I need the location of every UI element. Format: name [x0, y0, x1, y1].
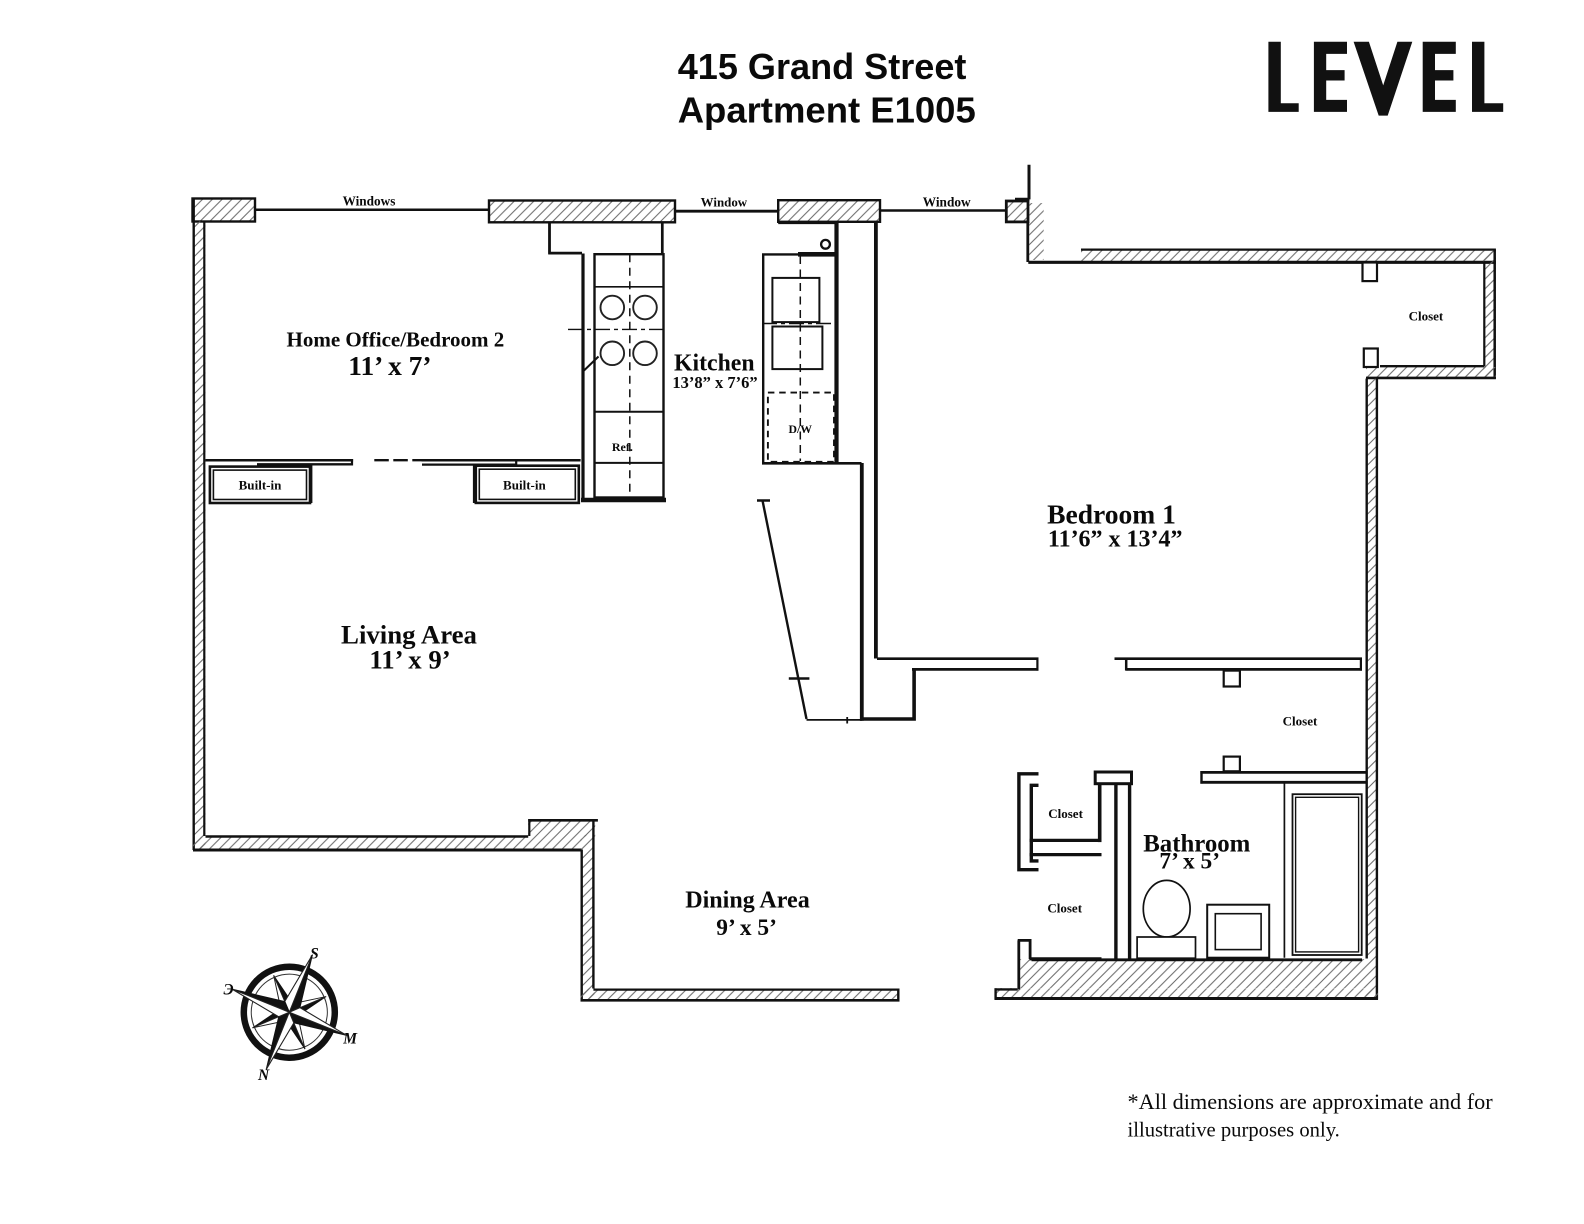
svg-text:Closet: Closet [1048, 806, 1083, 821]
svg-text:illustrative purposes only.: illustrative purposes only. [1128, 1120, 1340, 1142]
svg-text:Ref.: Ref. [612, 440, 633, 454]
svg-text:11’6” x 13’4”: 11’6” x 13’4” [1048, 527, 1183, 553]
svg-text:Built-in: Built-in [503, 477, 547, 492]
svg-text:13’8” x 7’6”: 13’8” x 7’6” [672, 373, 757, 392]
svg-text:N: N [257, 1067, 270, 1084]
svg-text:7’ x 5’: 7’ x 5’ [1159, 849, 1220, 875]
svg-text:11’ x 9’: 11’ x 9’ [369, 645, 450, 675]
svg-text:Bedroom 1: Bedroom 1 [1047, 499, 1176, 530]
svg-text:Closet: Closet [1283, 713, 1318, 728]
svg-text:M: M [342, 1030, 358, 1047]
svg-text:Window: Window [923, 195, 971, 210]
svg-text:415 Grand Street: 415 Grand Street [678, 46, 967, 87]
svg-text:Apartment E1005: Apartment E1005 [678, 90, 976, 131]
svg-text:Windows: Windows [343, 194, 396, 209]
svg-text:Dining Area: Dining Area [685, 888, 810, 914]
svg-text:Home Office/Bedroom 2: Home Office/Bedroom 2 [287, 327, 505, 351]
svg-text:Closet: Closet [1409, 309, 1444, 324]
svg-text:11’ x 7’: 11’ x 7’ [348, 351, 431, 381]
svg-text:Closet: Closet [1047, 900, 1082, 915]
svg-text:*All dimensions are approximat: *All dimensions are approximate and for [1128, 1089, 1494, 1114]
svg-text:D/W: D/W [789, 423, 813, 436]
svg-text:Built-in: Built-in [239, 478, 283, 493]
svg-text:Э: Э [224, 982, 234, 999]
svg-text:9’ x 5’: 9’ x 5’ [716, 915, 777, 941]
svg-text:S: S [310, 945, 319, 962]
svg-text:Window: Window [701, 195, 748, 210]
